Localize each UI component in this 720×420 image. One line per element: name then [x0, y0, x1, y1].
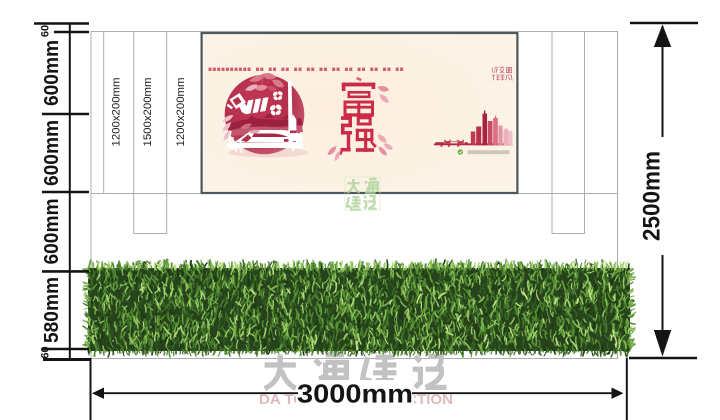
svg-text:1200x200mm: 1200x200mm — [175, 78, 187, 147]
svg-text:600mm: 600mm — [41, 40, 63, 106]
svg-text:1500x200mm: 1500x200mm — [142, 78, 154, 147]
svg-text:1200x200mm: 1200x200mm — [111, 78, 123, 147]
svg-text:60: 60 — [40, 346, 52, 358]
svg-text:60: 60 — [40, 25, 52, 37]
svg-text:3000mm: 3000mm — [297, 378, 413, 408]
svg-text:580mm: 580mm — [41, 277, 63, 343]
svg-text:600mm: 600mm — [41, 120, 63, 186]
svg-text:600mm: 600mm — [41, 199, 63, 265]
svg-text:2500mm: 2500mm — [639, 151, 666, 241]
